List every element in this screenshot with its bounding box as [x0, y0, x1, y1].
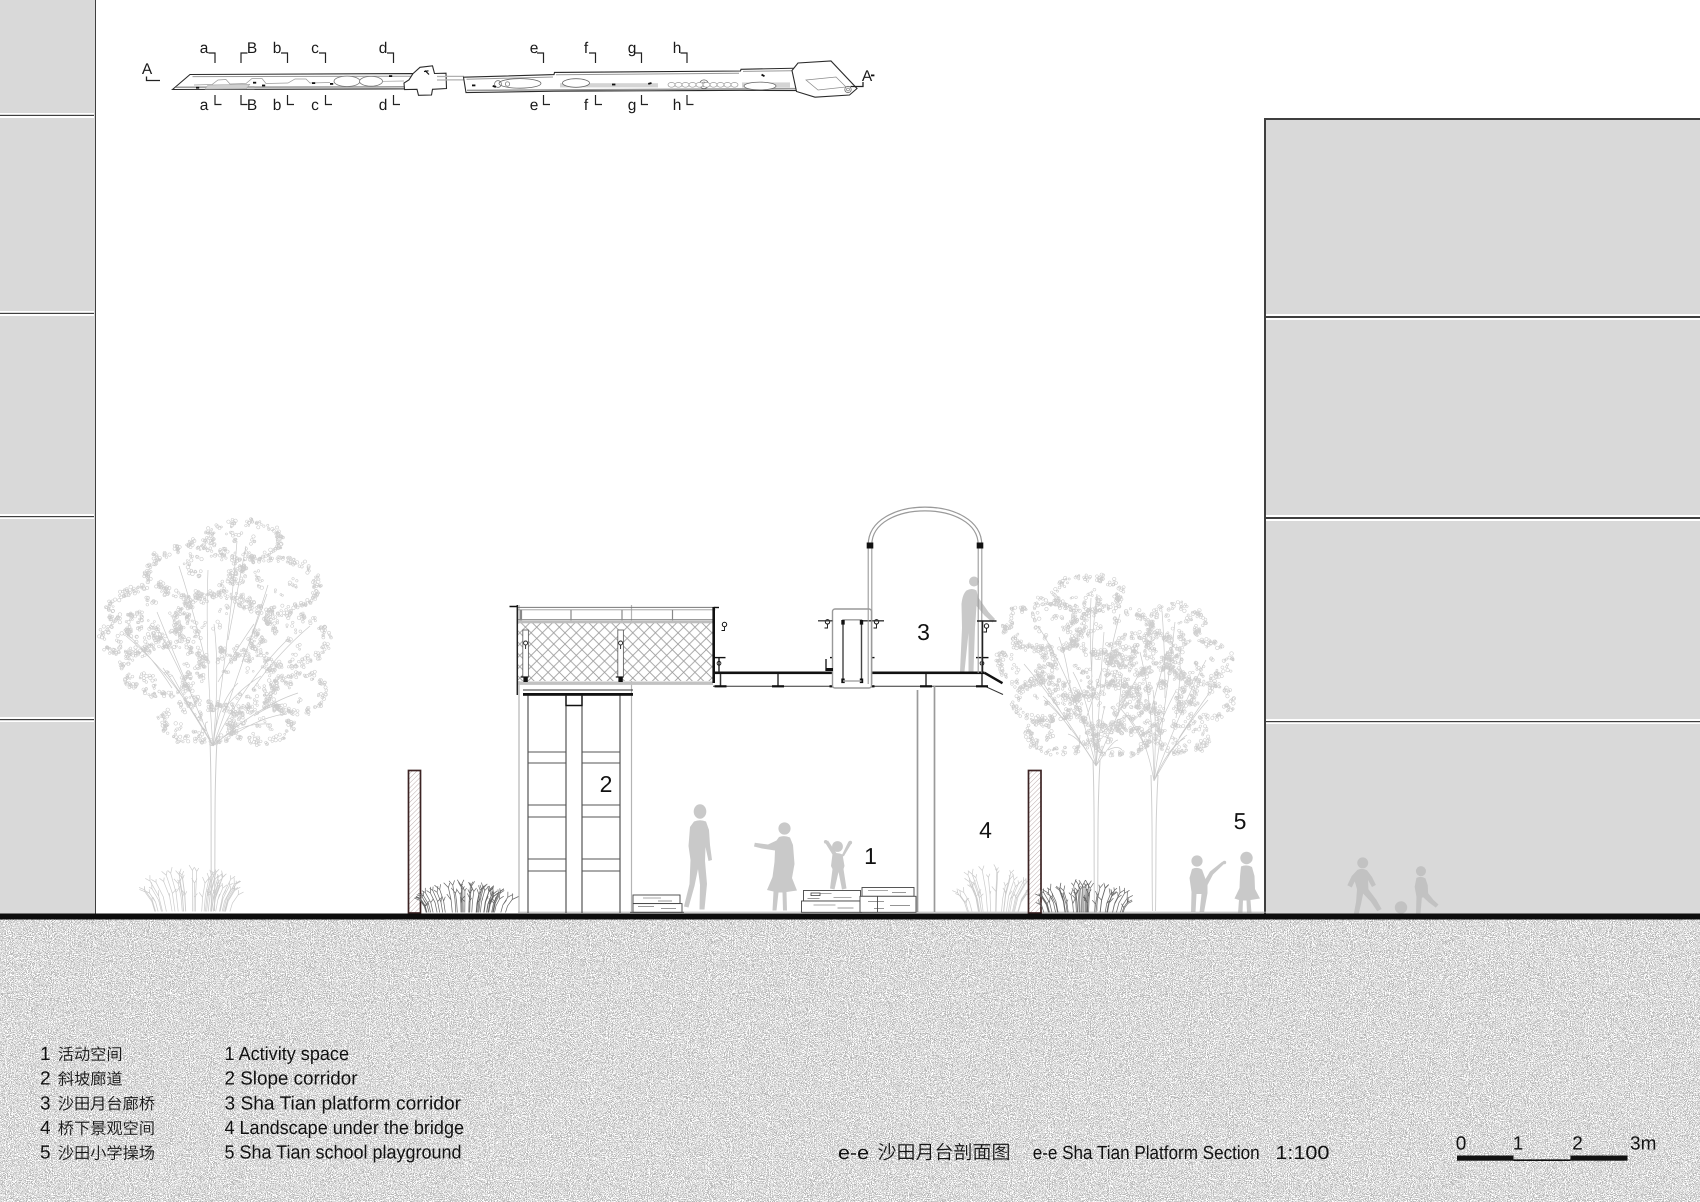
- svg-text:2: 2: [40, 1069, 51, 1090]
- svg-text:c: c: [311, 40, 319, 57]
- svg-text:2: 2: [600, 771, 613, 797]
- svg-text:5: 5: [40, 1143, 51, 1164]
- svg-text:2 Slope corridor: 2 Slope corridor: [225, 1069, 359, 1090]
- svg-text:d: d: [379, 97, 388, 114]
- svg-text:f: f: [584, 40, 589, 57]
- svg-text:e-e Sha Tian Platform Section: e-e Sha Tian Platform Section: [1033, 1143, 1260, 1164]
- svg-text:5: 5: [1234, 808, 1247, 834]
- svg-text:1: 1: [40, 1044, 51, 1065]
- svg-text:4: 4: [979, 817, 992, 843]
- svg-text:2: 2: [1572, 1134, 1583, 1155]
- svg-text:0: 0: [1456, 1134, 1467, 1155]
- svg-text:b: b: [273, 40, 282, 57]
- svg-text:e: e: [530, 97, 539, 114]
- svg-text:a: a: [200, 97, 209, 114]
- svg-text:g: g: [628, 40, 637, 57]
- svg-text:4: 4: [40, 1118, 51, 1139]
- svg-text:e: e: [530, 40, 539, 57]
- svg-text:h: h: [673, 97, 682, 114]
- svg-text:a: a: [200, 40, 209, 57]
- svg-text:h: h: [673, 40, 682, 57]
- svg-text:3: 3: [40, 1093, 51, 1114]
- svg-text:g: g: [628, 97, 637, 114]
- svg-text:B: B: [247, 97, 257, 114]
- svg-text:1: 1: [1513, 1134, 1524, 1155]
- svg-text:4 Landscape under the bridge: 4 Landscape under the bridge: [225, 1118, 465, 1139]
- svg-text:3m: 3m: [1630, 1134, 1656, 1155]
- svg-text:f: f: [584, 97, 589, 114]
- svg-text:1:100: 1:100: [1275, 1143, 1329, 1164]
- svg-text:5 Sha Tian school playground: 5 Sha Tian school playground: [225, 1143, 462, 1164]
- svg-text:1 Activity space: 1 Activity space: [225, 1044, 350, 1065]
- svg-text:B: B: [247, 40, 257, 57]
- svg-text:3 Sha Tian platform corridor: 3 Sha Tian platform corridor: [225, 1093, 462, 1114]
- svg-text:1: 1: [864, 843, 877, 869]
- svg-text:3: 3: [917, 619, 930, 645]
- svg-text:e-e: e-e: [838, 1143, 869, 1164]
- svg-text:d: d: [379, 40, 388, 57]
- svg-text:c: c: [311, 97, 319, 114]
- svg-text:b: b: [273, 97, 282, 114]
- svg-text:A: A: [142, 61, 153, 78]
